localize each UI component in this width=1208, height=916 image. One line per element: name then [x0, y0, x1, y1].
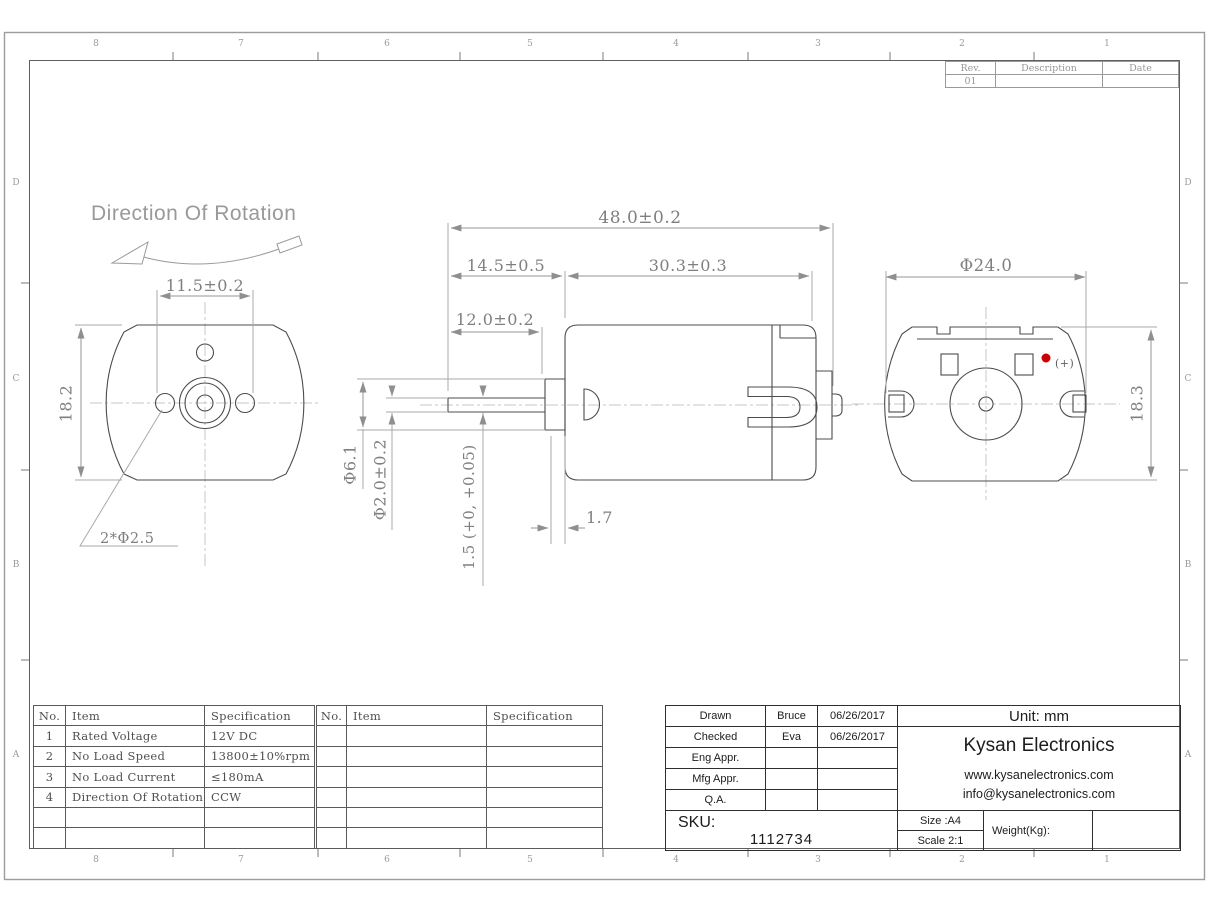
zone-label: B	[1181, 560, 1195, 570]
spec-cell: 4	[34, 788, 66, 808]
spec-cell: Rated Voltage	[66, 726, 205, 746]
dim-total-length: 48.0±0.2	[575, 208, 705, 228]
company-name: Kysan Electronics	[898, 735, 1180, 757]
spec-cell: 1	[34, 726, 66, 746]
size-cell: Size :A4	[897, 810, 984, 831]
spec-cell-empty	[487, 788, 603, 808]
spec-cell: 12V DC	[205, 726, 315, 746]
spec-header-item: Item	[66, 706, 205, 726]
spec-header-spec: Specification	[205, 706, 315, 726]
spec-cell-empty	[34, 808, 66, 828]
approval-name	[766, 748, 818, 769]
revision-value: 01	[946, 75, 996, 88]
zone-label: 4	[669, 855, 683, 865]
zone-label: D	[9, 178, 23, 188]
spec-cell-empty	[487, 747, 603, 767]
dim-boss-protrusion: 1.7	[586, 508, 630, 527]
spec-table: No. Item Specification 1 Rated Voltage 1…	[33, 705, 315, 849]
spec-cell-empty	[205, 828, 315, 848]
rotation-title: Direction Of Rotation	[91, 202, 296, 226]
sku-number: 1112734	[666, 831, 897, 848]
scale-cell: Scale 2:1	[897, 830, 984, 851]
zone-label: 6	[380, 855, 394, 865]
unit-cell: Unit: mm	[897, 705, 1181, 727]
zone-label: 8	[89, 39, 103, 49]
approval-table: Drawn Bruce 06/26/2017 Checked Eva 06/26…	[665, 705, 898, 811]
zone-label: A	[9, 750, 23, 760]
dim-shaft-dia: Φ2.0±0.2	[371, 427, 390, 533]
zone-label: 3	[811, 855, 825, 865]
spec-cell-empty	[317, 828, 347, 848]
spec-cell-empty	[347, 808, 487, 828]
zone-label: 4	[669, 39, 683, 49]
sku-label: SKU:	[678, 814, 715, 832]
spec-cell-empty	[317, 788, 347, 808]
approval-label: Checked	[666, 727, 766, 748]
spec-cell: No Load Speed	[66, 747, 205, 767]
spec-cell-empty	[347, 747, 487, 767]
zone-label: 3	[811, 39, 825, 49]
spec-header-no: No.	[34, 706, 66, 726]
company-website: www.kysanelectronics.com	[898, 768, 1180, 782]
spec-cell-empty	[205, 808, 315, 828]
zone-label: 5	[523, 39, 537, 49]
center-lines	[90, 302, 1120, 568]
revision-col-rev: Rev.	[946, 62, 996, 75]
approval-date: 06/26/2017	[818, 727, 898, 748]
zone-label: B	[9, 560, 23, 570]
revision-date-empty	[1103, 75, 1179, 88]
spec-cell-empty	[317, 726, 347, 746]
approval-label: Mfg Appr.	[666, 769, 766, 790]
sku-box: SKU: 1112734	[665, 810, 898, 851]
spec-header-no: No.	[317, 706, 347, 726]
zone-label: 2	[955, 39, 969, 49]
approval-date	[818, 790, 898, 811]
approval-date	[818, 769, 898, 790]
spec-cell-empty	[487, 808, 603, 828]
zone-label: 7	[234, 39, 248, 49]
dim-rear-height: 18.3	[1128, 379, 1147, 429]
positive-terminal-dot	[1042, 354, 1051, 363]
zone-label: 7	[234, 855, 248, 865]
dim-front-height: 18.2	[57, 379, 76, 429]
spec-cell-empty	[317, 767, 347, 787]
spec-cell-empty	[347, 828, 487, 848]
spec-cell-empty	[66, 828, 205, 848]
revision-col-date: Date	[1103, 62, 1179, 75]
zone-label: A	[1181, 750, 1195, 760]
arrowhead-icon	[112, 242, 148, 264]
zone-label: 1	[1100, 39, 1114, 49]
company-box: Kysan Electronics www.kysanelectronics.c…	[897, 726, 1181, 811]
dim-shaft-flat: 1.5 (+0, +0.05)	[460, 427, 478, 587]
zone-label: 1	[1100, 855, 1114, 865]
dim-rear-width: Φ24.0	[926, 256, 1046, 275]
spec-cell: CCW	[205, 788, 315, 808]
dim-mount-holes: 2*Φ2.5	[100, 531, 154, 547]
spec-cell-empty	[347, 788, 487, 808]
spec-table-empty: No. Item Specification	[316, 705, 603, 849]
zone-label: 5	[523, 855, 537, 865]
revision-col-desc: Description	[996, 62, 1103, 75]
spec-cell: ≤180mA	[205, 767, 315, 787]
spec-cell-empty	[317, 747, 347, 767]
spec-cell-empty	[66, 808, 205, 828]
spec-cell: 3	[34, 767, 66, 787]
drawing-sheet: 8 7 6 5 4 3 2 1 8 7 6 5 4 3 2 1 D C B A …	[0, 0, 1208, 916]
revision-table: Rev. Description Date 01	[945, 61, 1179, 88]
spec-cell: No Load Current	[66, 767, 205, 787]
spec-header-item: Item	[347, 706, 487, 726]
revision-desc-empty	[996, 75, 1103, 88]
zone-label: C	[9, 374, 23, 384]
spec-cell: 2	[34, 747, 66, 767]
zone-label: 8	[89, 855, 103, 865]
spec-cell-empty	[347, 767, 487, 787]
zone-label: D	[1181, 178, 1195, 188]
dim-body-length: 30.3±0.3	[628, 256, 748, 275]
company-email: info@kysanelectronics.com	[898, 787, 1180, 801]
spec-cell: 13800±10%rpm	[205, 747, 315, 767]
spec-cell-empty	[34, 828, 66, 848]
dim-shaft-length: 12.0±0.2	[440, 310, 550, 329]
dim-hole-spacing: 11.5±0.2	[155, 276, 255, 295]
ccw-rotation-arrow	[112, 236, 302, 264]
approval-name	[766, 790, 818, 811]
approval-date: 06/26/2017	[818, 706, 898, 727]
spec-cell-empty	[487, 828, 603, 848]
approval-label: Drawn	[666, 706, 766, 727]
polarity-label: (+)	[1055, 357, 1074, 370]
dim-front-length: 14.5±0.5	[446, 256, 566, 275]
weight-value-cell	[1092, 810, 1181, 851]
spec-cell-empty	[487, 767, 603, 787]
approval-date	[818, 748, 898, 769]
spec-cell-empty	[347, 726, 487, 746]
approval-name	[766, 769, 818, 790]
approval-label: Eng Appr.	[666, 748, 766, 769]
spec-header-spec: Specification	[487, 706, 603, 726]
approval-name: Eva	[766, 727, 818, 748]
dim-boss-dia: Φ6.1	[341, 438, 360, 492]
spec-cell: Direction Of Rotation	[66, 788, 205, 808]
spec-cell-empty	[317, 808, 347, 828]
zone-label: C	[1181, 374, 1195, 384]
zone-label: 6	[380, 39, 394, 49]
approval-label: Q.A.	[666, 790, 766, 811]
weight-cell: Weight(Kg):	[983, 810, 1093, 851]
side-view-drawing	[448, 325, 842, 480]
approval-name: Bruce	[766, 706, 818, 727]
spec-cell-empty	[487, 726, 603, 746]
zone-label: 2	[955, 855, 969, 865]
